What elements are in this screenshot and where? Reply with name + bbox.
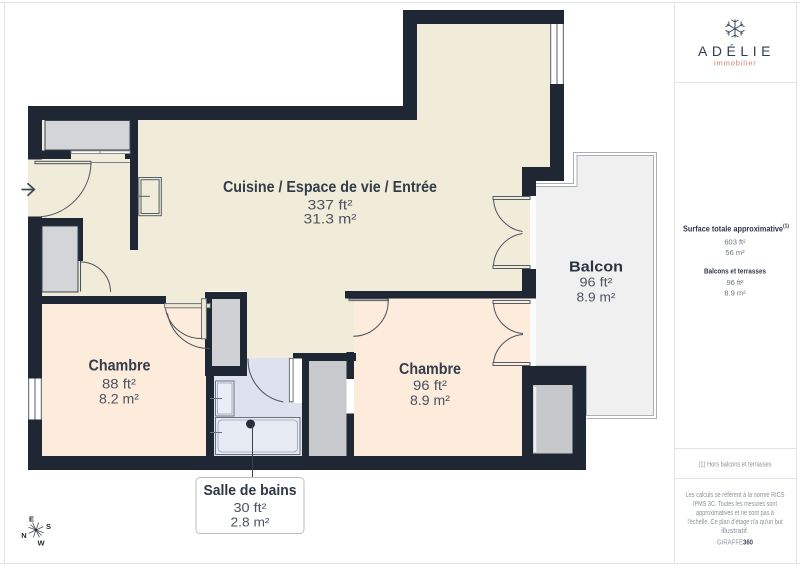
svg-text:Les calculs se réfèrent à la n: Les calculs se réfèrent à la norme RICS [686, 492, 785, 499]
svg-text:337 ft²: 337 ft² [308, 198, 354, 213]
svg-text:31.3 m²: 31.3 m² [304, 212, 358, 227]
svg-text:8.2 m²: 8.2 m² [99, 392, 140, 407]
svg-text:S: S [46, 522, 51, 531]
svg-text:(1): (1) [783, 224, 789, 230]
svg-text:Balcons et terrasses: Balcons et terrasses [704, 267, 766, 276]
svg-text:W: W [37, 539, 45, 548]
svg-text:Balcon: Balcon [569, 259, 623, 276]
svg-text:illustratif.: illustratif. [721, 528, 749, 535]
svg-text:8.9 m²: 8.9 m² [410, 393, 451, 408]
svg-text:IPMS 3C. Toutes les mesures so: IPMS 3C. Toutes les mesures sont [693, 501, 777, 508]
svg-text:Surface totale approximative: Surface totale approximative [683, 225, 784, 234]
svg-text:(1) Hors balcons et terrasses: (1) Hors balcons et terrasses [699, 460, 772, 469]
svg-text:88 ft²: 88 ft² [102, 377, 137, 392]
svg-text:l'échelle. Ce plan d'étage n'a: l'échelle. Ce plan d'étage n'a qu'un but [688, 519, 783, 526]
svg-text:N: N [21, 531, 26, 540]
svg-text:96 ft²: 96 ft² [580, 275, 614, 290]
svg-text:8.9 m²: 8.9 m² [724, 289, 746, 298]
svg-text:30 ft²: 30 ft² [234, 500, 268, 515]
svg-text:E: E [29, 515, 34, 524]
svg-text:immobilier: immobilier [714, 59, 757, 68]
svg-text:Chambre: Chambre [399, 361, 461, 378]
svg-text:8.9 m²: 8.9 m² [577, 290, 617, 305]
svg-text:Cuisine / Espace de vie / Entr: Cuisine / Espace de vie / Entrée [223, 179, 437, 196]
svg-text:approximatives et ne sont pas: approximatives et ne sont pas à [696, 510, 774, 517]
svg-text:96 ft²: 96 ft² [413, 378, 448, 393]
svg-text:ADÉLIE: ADÉLIE [698, 43, 774, 59]
svg-text:603 ft²: 603 ft² [724, 238, 746, 247]
svg-text:2.8 m²: 2.8 m² [231, 515, 271, 530]
svg-text:96 ft²: 96 ft² [726, 278, 744, 287]
svg-text:GIRAFFE360: GIRAFFE360 [717, 538, 753, 547]
svg-text:Salle de bains: Salle de bains [204, 482, 297, 499]
svg-text:Chambre: Chambre [89, 358, 151, 375]
svg-text:56 m²: 56 m² [725, 248, 745, 257]
